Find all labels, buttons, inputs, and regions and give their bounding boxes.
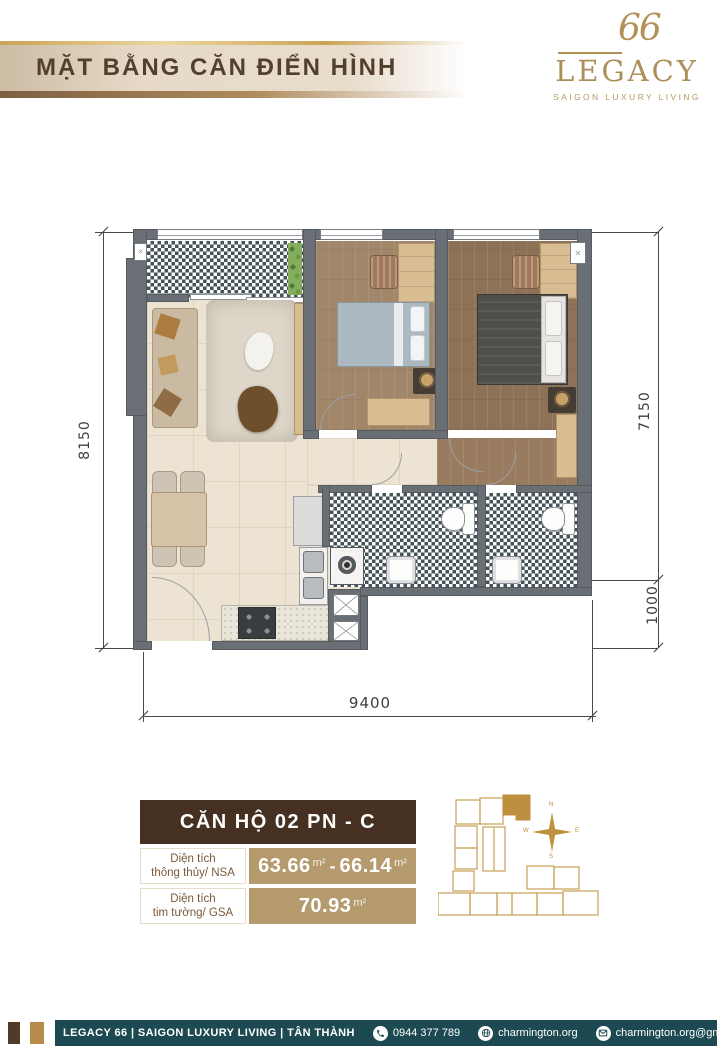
compass-w: W bbox=[523, 828, 529, 834]
unit-row-nsa: Diện tích thông thủy/ NSA 63.66 m² - 66.… bbox=[140, 848, 416, 884]
kitchen-sink bbox=[303, 551, 324, 573]
bathroom-2-toilet-bowl bbox=[541, 507, 565, 531]
extension-line bbox=[592, 648, 658, 649]
wall-left-pier bbox=[126, 258, 147, 416]
wall-bath-top bbox=[402, 485, 486, 493]
dimension-label-right-upper: 7150 bbox=[637, 389, 653, 433]
bed-2-pillow bbox=[545, 341, 562, 376]
bedroom-1-desk-chair bbox=[370, 255, 398, 289]
dining-table bbox=[151, 492, 207, 547]
wall-living-bedroom1 bbox=[303, 229, 316, 438]
wall-bath-bottom bbox=[360, 587, 592, 596]
area-unit: m² bbox=[394, 848, 407, 869]
wall-bath-top bbox=[516, 485, 592, 493]
dimension-label-bottom: 9400 bbox=[330, 694, 410, 712]
balcony-plants bbox=[288, 243, 302, 295]
compass-icon bbox=[532, 812, 572, 852]
bedroom-2-side-desk bbox=[556, 414, 577, 478]
unit-title: CĂN HỘ 02 PN - C bbox=[140, 800, 416, 844]
footer-gold-square bbox=[30, 1022, 44, 1044]
footer-email[interactable]: charmington.org@gmail.com bbox=[616, 1027, 717, 1039]
shaft-niche-left: ✕ bbox=[134, 243, 147, 261]
refrigerator bbox=[293, 496, 324, 546]
dimension-label-right-lower: 1000 bbox=[645, 583, 661, 627]
bedroom-1-wardrobe bbox=[398, 243, 435, 303]
area-value: 63.66 bbox=[258, 855, 311, 878]
shaft-niche-right: ✕ bbox=[570, 242, 586, 264]
bedroom-2-window bbox=[453, 229, 540, 240]
key-plan-blocks bbox=[438, 785, 618, 935]
compass-n: N bbox=[549, 802, 553, 808]
label-line: thông thủy/ NSA bbox=[151, 866, 235, 880]
wall-right bbox=[577, 229, 592, 596]
extension-line bbox=[592, 232, 658, 233]
bedroom-1-bench bbox=[367, 398, 430, 426]
unit-row-label: Diện tích thông thủy/ NSA bbox=[140, 848, 246, 884]
extension-line bbox=[592, 580, 658, 581]
wall-bottom-left bbox=[212, 641, 368, 650]
dimension-line-bottom bbox=[143, 716, 596, 717]
area-unit: m² bbox=[353, 888, 366, 909]
stove bbox=[238, 607, 276, 639]
bed-1-blanket-fold bbox=[394, 303, 403, 366]
nightstand-lamp bbox=[419, 372, 435, 388]
bed-1-pillow bbox=[410, 306, 425, 332]
compass-e: E bbox=[575, 828, 579, 834]
unit-row-gsa: Diện tích tim tường/ GSA 70.93 m² bbox=[140, 888, 416, 924]
compass-s: S bbox=[549, 854, 553, 860]
area-separator: - bbox=[330, 856, 336, 877]
washing-machine-door bbox=[338, 556, 356, 574]
wall-under-bedroom1 bbox=[357, 430, 448, 439]
balcony-wall-stub bbox=[147, 294, 189, 302]
wall-bottom-left bbox=[133, 641, 152, 650]
bed-2-pillow bbox=[545, 301, 562, 336]
nightstand-lamp bbox=[554, 391, 570, 407]
extension-line bbox=[143, 652, 144, 722]
area-value: 66.14 bbox=[340, 855, 393, 878]
balcony-railing bbox=[157, 229, 303, 240]
area-unit: m² bbox=[313, 848, 326, 869]
label-line: tim tường/ GSA bbox=[153, 906, 233, 920]
bathroom-1-sink bbox=[386, 556, 416, 584]
bedroom-1-window bbox=[320, 229, 383, 240]
bed-1-pillow bbox=[410, 335, 425, 361]
dimension-label-left: 8150 bbox=[77, 418, 93, 462]
footer-project-name: LEGACY 66 | SAIGON LUXURY LIVING | TÂN T… bbox=[63, 1027, 355, 1039]
bathroom-2-sink bbox=[492, 556, 522, 584]
extension-line bbox=[592, 600, 593, 722]
footer-brown-square bbox=[8, 1022, 20, 1044]
wall-kitchen-nook bbox=[360, 596, 368, 650]
wall-under-bedroom1 bbox=[303, 430, 319, 439]
area-value: 70.93 bbox=[299, 895, 352, 918]
footer-bar: LEGACY 66 | SAIGON LUXURY LIVING | TÂN T… bbox=[55, 1020, 717, 1046]
wall-bath-left bbox=[322, 485, 330, 547]
footer-phone[interactable]: 0944 377 789 bbox=[393, 1027, 460, 1039]
key-plan-highlighted-unit bbox=[503, 795, 530, 820]
kitchen-sink bbox=[303, 577, 324, 599]
wall-bedroom-divider bbox=[435, 229, 448, 438]
label-line: Diện tích bbox=[170, 892, 215, 906]
footer-website[interactable]: charmington.org bbox=[498, 1027, 578, 1039]
email-icon bbox=[596, 1026, 611, 1041]
technical-shaft bbox=[333, 594, 359, 616]
phone-icon bbox=[373, 1026, 388, 1041]
sofa-pillow bbox=[157, 354, 178, 375]
wall-bath-divider bbox=[477, 485, 486, 587]
bathroom-1-toilet-bowl bbox=[441, 507, 465, 531]
unit-row-value: 70.93 m² bbox=[249, 888, 416, 924]
label-line: Diện tích bbox=[170, 852, 215, 866]
unit-row-label: Diện tích tim tường/ GSA bbox=[140, 888, 246, 924]
dimension-line-left bbox=[103, 232, 104, 648]
globe-icon bbox=[478, 1026, 493, 1041]
unit-info-table: CĂN HỘ 02 PN - C Diện tích thông thủy/ N… bbox=[140, 800, 416, 924]
technical-shaft bbox=[333, 621, 359, 641]
key-plan: N E S W bbox=[438, 785, 618, 935]
unit-row-value: 63.66 m² - 66.14 m² bbox=[249, 848, 416, 884]
bedroom-2-desk-chair bbox=[512, 255, 540, 289]
balcony-floor bbox=[147, 241, 303, 297]
